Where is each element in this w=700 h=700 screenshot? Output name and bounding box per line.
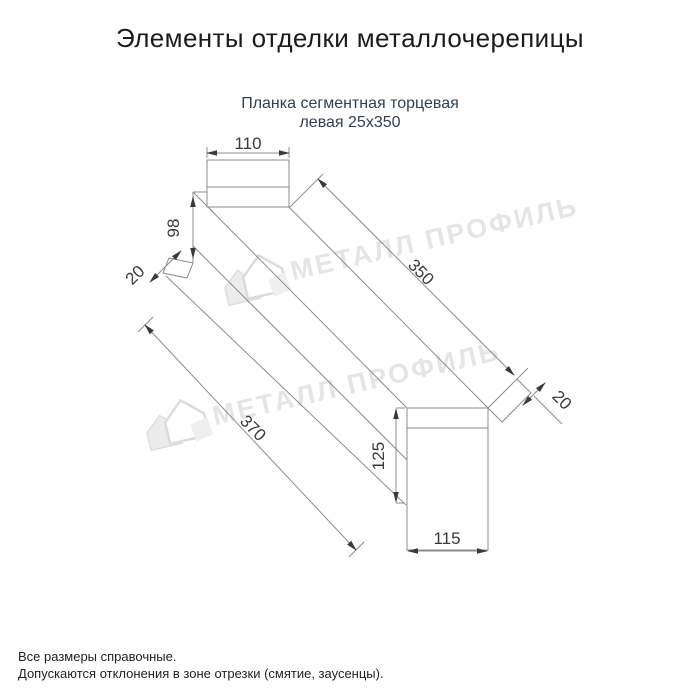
metall-profil-logo-icon [142, 395, 214, 452]
footnotes: Все размеры справочные. Допускаются откл… [18, 648, 384, 682]
footnote-line2: Допускаются отклонения в зоне отрезки (с… [18, 665, 384, 682]
far-fold-extension [517, 368, 528, 379]
near-end-face [207, 160, 289, 207]
dim-left-height-98: 98 [164, 197, 193, 258]
dim-label-98: 98 [164, 219, 183, 238]
footnote-line1: Все размеры справочные. [18, 648, 384, 665]
dim-top-width-110: 110 [207, 134, 289, 158]
dim-right-fold-20: 20 [523, 383, 575, 414]
watermark-upper: МЕТАЛЛ ПРОФИЛЬ [220, 183, 583, 307]
dim-label-350: 350 [404, 255, 437, 288]
dim-label-125: 125 [369, 442, 388, 470]
dim-label-110: 110 [234, 134, 261, 153]
profile-drawing: МЕТАЛЛ ПРОФИЛЬ МЕТАЛЛ ПРОФИЛЬ [0, 0, 700, 700]
face-top-edge [193, 192, 407, 408]
near-bottom-fold [163, 258, 193, 278]
far-top-fold [488, 379, 531, 422]
dim-right-height-125: 125 [369, 408, 405, 503]
dim-label-20-left: 20 [122, 262, 149, 289]
watermark-lower: МЕТАЛЛ ПРОФИЛЬ [142, 328, 505, 452]
metall-profil-logo-icon [220, 250, 292, 307]
dim-bottom-width-115: 115 [408, 529, 487, 551]
dim-left-fold-20: 20 [122, 251, 181, 289]
dim-label-20-right: 20 [548, 387, 575, 414]
dim-label-115: 115 [433, 529, 460, 548]
drawing-page: Элементы отделки металлочерепицы Планка … [0, 0, 700, 700]
